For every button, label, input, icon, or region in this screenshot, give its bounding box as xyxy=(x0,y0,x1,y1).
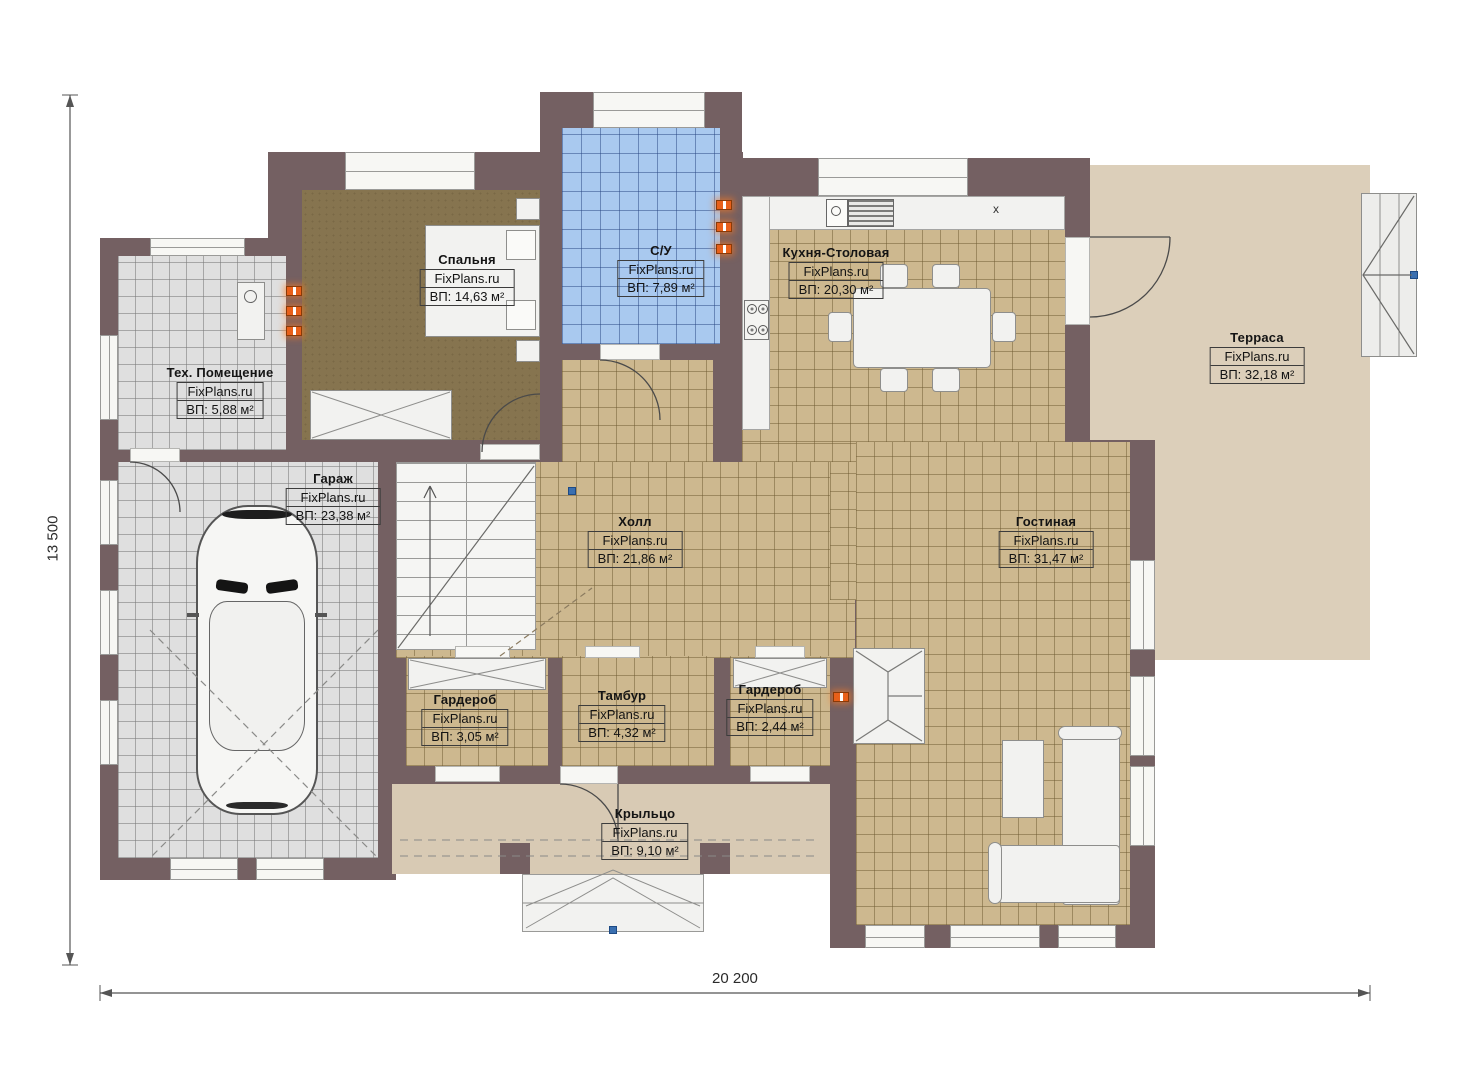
sofa-horizontal xyxy=(998,845,1120,903)
dining-table xyxy=(853,288,991,368)
car-mirror xyxy=(315,613,327,617)
area-value: ВП: 7,89 м² xyxy=(618,278,703,296)
room-name: С/У xyxy=(617,243,704,258)
door-opening-wardrobe-right xyxy=(755,646,805,658)
area-value: ВП: 23,38 м² xyxy=(287,506,380,524)
car-roof xyxy=(209,601,305,751)
dining-chair xyxy=(932,264,960,288)
dimension-ticks-height xyxy=(62,95,78,965)
radiator-icon xyxy=(716,244,732,254)
area-value: ВП: 9,10 м² xyxy=(602,841,687,859)
brand-link: FixPlans.ru xyxy=(602,824,687,841)
fireplace xyxy=(853,648,925,744)
door-opening-tambour-hall xyxy=(585,646,640,658)
boiler-icon xyxy=(244,290,257,303)
dimension-height-label: 13 500 xyxy=(44,516,61,562)
brand-link: FixPlans.ru xyxy=(422,710,507,727)
burner-icon xyxy=(758,304,768,314)
stove-icon xyxy=(744,300,769,340)
window xyxy=(1130,676,1155,756)
dimension-arrow xyxy=(1358,989,1370,997)
terrace-door-opening xyxy=(1130,560,1155,650)
car-rear xyxy=(226,802,288,809)
area-value: ВП: 21,86 м² xyxy=(589,549,682,567)
window xyxy=(593,92,705,128)
room-name: Холл xyxy=(588,514,683,529)
room-label-bathroom: С/У FixPlans.ru ВП: 7,89 м² xyxy=(617,243,704,297)
counter-x-marker: x xyxy=(993,202,999,216)
window-sill xyxy=(435,766,500,782)
window xyxy=(100,590,118,655)
radiator-icon xyxy=(286,326,302,336)
room-name: Спальня xyxy=(420,252,515,267)
porch-pillar xyxy=(700,843,730,874)
room-label-tech: Тех. Помещение FixPlans.ru ВП: 5,88 м² xyxy=(167,365,274,419)
room-label-hall: Холл FixPlans.ru ВП: 21,86 м² xyxy=(588,514,683,568)
room-label-garage: Гараж FixPlans.ru ВП: 23,38 м² xyxy=(286,471,381,525)
bedroom-wardrobe xyxy=(310,390,452,440)
area-value: ВП: 31,47 м² xyxy=(1000,549,1093,567)
window xyxy=(170,858,238,880)
door-opening-wardrobe-left xyxy=(455,646,510,658)
brand-link: FixPlans.ru xyxy=(790,263,883,280)
room-label-tambour: Тамбур FixPlans.ru ВП: 4,32 м² xyxy=(578,688,665,742)
opening-hall-living xyxy=(830,442,856,600)
dining-chair xyxy=(880,368,908,392)
opening-kitchen-hall xyxy=(742,442,856,462)
nightstand xyxy=(516,340,540,362)
room-label-wardrobe-right: Гардероб FixPlans.ru ВП: 2,44 м² xyxy=(726,682,813,736)
door-opening-tambour xyxy=(560,766,618,784)
floor-plan: x xyxy=(0,0,1474,1080)
brand-link: FixPlans.ru xyxy=(287,489,380,506)
window xyxy=(1130,766,1155,846)
area-value: ВП: 20,30 м² xyxy=(790,280,883,298)
room-label-living: Гостиная FixPlans.ru ВП: 31,47 м² xyxy=(999,514,1094,568)
brand-link: FixPlans.ru xyxy=(421,270,514,287)
brand-link: FixPlans.ru xyxy=(589,532,682,549)
brand-link: FixPlans.ru xyxy=(177,383,262,400)
reference-dot xyxy=(1410,271,1418,279)
area-value: ВП: 3,05 м² xyxy=(422,727,507,745)
window xyxy=(100,335,118,420)
brand-link: FixPlans.ru xyxy=(727,700,812,717)
sofa-armrest xyxy=(1058,726,1122,740)
room-name: Гараж xyxy=(286,471,381,486)
window xyxy=(950,925,1040,948)
room-label-bedroom: Спальня FixPlans.ru ВП: 14,63 м² xyxy=(420,252,515,306)
sofa-armrest xyxy=(988,842,1002,904)
radiator-icon xyxy=(716,200,732,210)
room-name: Крыльцо xyxy=(601,806,688,821)
window-sill xyxy=(750,766,810,782)
dimension-width-label: 20 200 xyxy=(712,970,758,987)
brand-link: FixPlans.ru xyxy=(579,706,664,723)
car-front-grille xyxy=(222,510,292,519)
burner-icon xyxy=(747,325,757,335)
room-name: Тех. Помещение xyxy=(167,365,274,380)
window xyxy=(150,238,245,256)
porch-pillar xyxy=(500,843,530,874)
room-name: Кухня-Столовая xyxy=(783,245,890,260)
area-value: ВП: 2,44 м² xyxy=(727,717,812,735)
area-value: ВП: 32,18 м² xyxy=(1211,365,1304,383)
room-name: Тамбур xyxy=(578,688,665,703)
wardrobe-rail-left xyxy=(408,658,546,690)
door-opening-tech xyxy=(130,448,180,462)
area-value: ВП: 5,88 м² xyxy=(177,400,262,418)
dining-chair xyxy=(992,312,1016,342)
radiator-icon xyxy=(286,286,302,296)
room-label-porch: Крыльцо FixPlans.ru ВП: 9,10 м² xyxy=(601,806,688,860)
window xyxy=(100,480,118,545)
dining-chair xyxy=(932,368,960,392)
kitchen-sink-icon xyxy=(826,199,848,227)
burner-icon xyxy=(747,304,757,314)
car-top-view xyxy=(196,505,318,815)
room-label-kitchen: Кухня-Столовая FixPlans.ru ВП: 20,30 м² xyxy=(783,245,890,299)
window xyxy=(256,858,324,880)
nightstand xyxy=(516,198,540,220)
room-name: Гардероб xyxy=(421,692,508,707)
radiator-icon xyxy=(286,306,302,316)
window xyxy=(818,158,968,196)
dimension-arrow xyxy=(66,953,74,965)
radiator-icon xyxy=(833,692,849,702)
brand-link: FixPlans.ru xyxy=(618,261,703,278)
coffee-table xyxy=(1002,740,1044,818)
area-value: ВП: 14,63 м² xyxy=(421,287,514,305)
room-label-wardrobe-left: Гардероб FixPlans.ru ВП: 3,05 м² xyxy=(421,692,508,746)
window xyxy=(1058,925,1116,948)
door-opening-bathroom xyxy=(600,344,660,360)
door-opening-kitchen-terrace xyxy=(1065,237,1090,325)
area-value: ВП: 4,32 м² xyxy=(579,723,664,741)
room-name: Гостиная xyxy=(999,514,1094,529)
stairs-main xyxy=(396,462,536,650)
brand-link: FixPlans.ru xyxy=(1211,348,1304,365)
dining-chair xyxy=(828,312,852,342)
brand-link: FixPlans.ru xyxy=(1000,532,1093,549)
dimension-ticks-width xyxy=(100,985,1370,1001)
reference-dot xyxy=(568,487,576,495)
burner-icon xyxy=(758,325,768,335)
car-mirror xyxy=(187,613,199,617)
porch-steps xyxy=(522,874,704,932)
terrace-side-steps xyxy=(1361,193,1417,357)
door-opening-bedroom xyxy=(480,444,540,460)
window xyxy=(345,152,475,190)
kitchen-counter-top xyxy=(742,196,1065,230)
room-label-terrace: Терраса FixPlans.ru ВП: 32,18 м² xyxy=(1210,330,1305,384)
dimension-arrow xyxy=(66,95,74,107)
floor-bath-lobby xyxy=(562,360,713,462)
room-name: Гардероб xyxy=(726,682,813,697)
radiator-icon xyxy=(716,222,732,232)
reference-dot xyxy=(609,926,617,934)
room-floor-bathroom xyxy=(562,128,720,344)
window xyxy=(865,925,925,948)
window xyxy=(100,700,118,765)
room-name: Терраса xyxy=(1210,330,1305,345)
dimension-arrow xyxy=(100,989,112,997)
kitchen-sink-drainer xyxy=(848,199,894,227)
